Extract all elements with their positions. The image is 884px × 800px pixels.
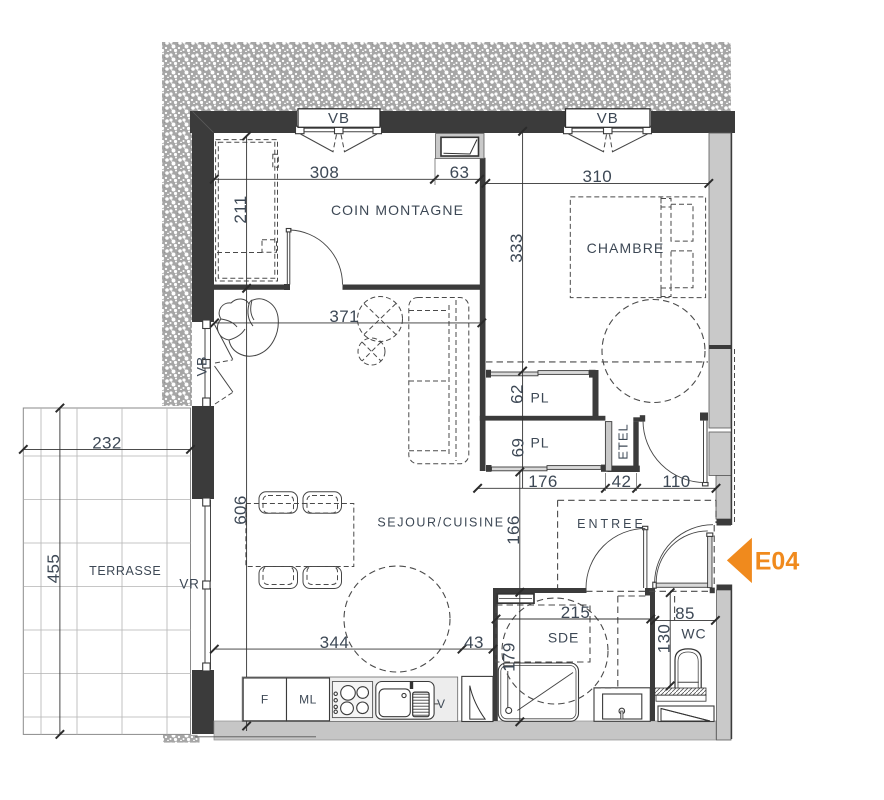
svg-text:VB: VB xyxy=(597,110,619,127)
svg-text:62: 62 xyxy=(508,384,527,404)
svg-text:43: 43 xyxy=(464,633,484,652)
svg-text:455: 455 xyxy=(44,554,63,584)
svg-text:166: 166 xyxy=(504,515,523,545)
svg-text:ML: ML xyxy=(299,693,317,707)
svg-text:371: 371 xyxy=(329,307,359,326)
svg-text:130: 130 xyxy=(654,624,673,654)
svg-text:344: 344 xyxy=(320,633,350,652)
svg-text:308: 308 xyxy=(310,163,340,182)
svg-text:VR: VR xyxy=(179,577,199,592)
svg-text:COIN MONTAGNE: COIN MONTAGNE xyxy=(331,202,464,218)
svg-text:VB: VB xyxy=(328,110,350,127)
svg-text:PL: PL xyxy=(530,434,549,450)
svg-text:WC: WC xyxy=(681,626,706,642)
svg-text:606: 606 xyxy=(231,495,250,525)
svg-text:SEJOUR/CUISINE: SEJOUR/CUISINE xyxy=(377,516,504,530)
svg-text:85: 85 xyxy=(675,604,695,623)
svg-text:CHAMBRE: CHAMBRE xyxy=(587,240,665,256)
svg-text:42: 42 xyxy=(612,472,632,491)
svg-text:E04: E04 xyxy=(755,548,800,576)
svg-text:V: V xyxy=(437,697,446,711)
svg-text:179: 179 xyxy=(500,642,519,672)
svg-text:69: 69 xyxy=(509,438,528,458)
svg-text:63: 63 xyxy=(450,163,470,182)
svg-text:ETEL: ETEL xyxy=(616,423,631,460)
svg-text:333: 333 xyxy=(507,233,526,263)
svg-text:110: 110 xyxy=(662,472,690,491)
svg-text:SDE: SDE xyxy=(548,629,579,645)
svg-text:TERRASSE: TERRASSE xyxy=(89,564,161,578)
svg-text:F: F xyxy=(261,693,269,707)
svg-text:ENTREE: ENTREE xyxy=(577,517,646,531)
svg-text:176: 176 xyxy=(528,472,558,491)
svg-text:PL: PL xyxy=(530,389,549,405)
svg-text:310: 310 xyxy=(583,167,613,186)
svg-text:215: 215 xyxy=(561,603,591,622)
svg-text:VB: VB xyxy=(193,356,209,377)
svg-text:211: 211 xyxy=(231,195,250,223)
svg-text:232: 232 xyxy=(92,433,122,452)
